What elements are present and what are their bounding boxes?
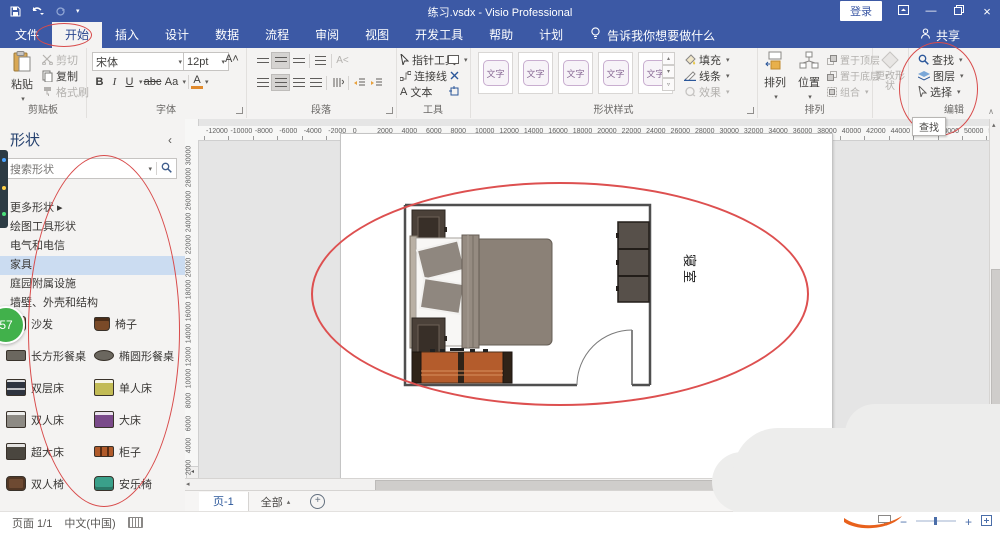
bring-front-icon — [827, 55, 837, 65]
shape-style-swatch-0[interactable]: 文字 — [478, 52, 513, 94]
paragraph-row-2 — [254, 74, 385, 91]
fill-button[interactable]: 填充▾ — [684, 52, 730, 67]
ribbon-tabs: 文件开始插入设计数据流程审阅视图开发工具帮助计划 — [2, 22, 576, 48]
rectangle-icon — [448, 55, 459, 64]
orange-swoosh-logo — [840, 512, 910, 532]
paragraph-row-1: A˂ — [254, 52, 351, 69]
effects-button[interactable]: 效果▾ — [684, 84, 730, 99]
shape-style-swatch-3[interactable]: 文字 — [598, 52, 633, 94]
xl-bed-icon — [6, 443, 26, 460]
bunk-bed-icon — [6, 379, 26, 396]
search-icon[interactable] — [161, 162, 172, 176]
fit-page-icon[interactable] — [981, 515, 992, 529]
page-tab[interactable]: 页-1 — [199, 492, 249, 512]
fill-bucket-icon — [684, 54, 696, 65]
increase-indent-button[interactable] — [368, 75, 385, 90]
gallery-down-button[interactable]: ▾ — [662, 65, 675, 78]
shape-styles-dialog-launcher[interactable] — [747, 107, 754, 114]
find-tooltip: 查找 — [912, 117, 946, 136]
font-group-label: 字体 — [86, 101, 246, 116]
bedroom-floor-plan[interactable]: 寝室 — [340, 133, 831, 477]
ribbon-tab-row: 文件开始插入设计数据流程审阅视图开发工具帮助计划 告诉我你想要做什么 共享 — [0, 22, 1000, 48]
chair-icon — [94, 317, 110, 331]
underline-button[interactable]: U — [122, 76, 137, 88]
align-right-button[interactable] — [290, 75, 307, 90]
tab-0[interactable]: 文件 — [2, 22, 52, 48]
page-indicator[interactable]: 页面 1/1 — [12, 515, 52, 531]
ribbon-group-change-shape: 更改形状 — [872, 48, 909, 118]
font-dialog-launcher[interactable] — [236, 107, 243, 114]
tab-3[interactable]: 设计 — [152, 22, 202, 48]
macro-record-icon[interactable] — [128, 517, 143, 528]
close-button[interactable]: × — [980, 4, 994, 19]
shape-styles-group-label: 形状样式 — [470, 101, 757, 116]
ribbon-display-options-icon[interactable] — [896, 5, 910, 18]
change-shape-button[interactable]: 更改形状 — [872, 51, 908, 92]
align-icon — [765, 51, 785, 71]
ribbon-group-shape-styles: 文字文字文字文字文字 ▴▾▿ 填充▾ 线条▾ 效果▾ 形状样式 — [470, 48, 758, 118]
brush-icon — [42, 86, 53, 97]
ruler-corner — [185, 119, 199, 141]
rect-table-icon — [6, 350, 26, 361]
scissors-icon — [42, 54, 53, 65]
align-left-button[interactable] — [254, 75, 271, 90]
connection-point-button[interactable] — [450, 68, 459, 83]
x-icon — [450, 71, 459, 80]
connector-icon — [400, 71, 411, 81]
shapes-panel-title: 形状 — [10, 129, 40, 150]
ribbon: 粘贴▾ 剪切 复制 格式刷 剪贴板 宋体▾ 12pt▾ A˄ . B I U ▾… — [0, 48, 1000, 120]
select-button[interactable]: 选择▾ — [918, 84, 961, 99]
justify-button[interactable] — [307, 75, 324, 90]
line-button[interactable]: 线条▾ — [684, 68, 730, 83]
collapse-ribbon-icon[interactable]: ∧ — [988, 107, 994, 116]
change-shape-icon — [880, 51, 900, 69]
stencil-shape-5[interactable]: 单人床 — [94, 379, 182, 396]
tab-5[interactable]: 流程 — [252, 22, 302, 48]
vertical-scroll-thumb[interactable] — [991, 269, 1000, 416]
search-dropdown-icon[interactable]: ▾ — [148, 165, 152, 173]
align-bottom-button[interactable] — [290, 53, 307, 68]
connector-tool-button[interactable]: 连接线 — [400, 68, 447, 83]
tab-8[interactable]: 开发工具 — [402, 22, 476, 48]
loveseat-icon — [6, 476, 26, 491]
tab-1[interactable]: 开始 — [52, 22, 102, 48]
drawing-tool-button[interactable] — [449, 84, 460, 99]
paragraph-dialog-launcher[interactable] — [386, 107, 393, 114]
vertical-ruler: ◂ 30000280002600024000220002000018000160… — [185, 140, 199, 479]
docked-app-strip[interactable] — [0, 150, 8, 228]
titlebar-controls: 登录 — × — [840, 0, 994, 22]
gallery-scroll-buttons: ▴▾▿ — [662, 52, 675, 91]
stencil-shape-1[interactable]: 椅子 — [94, 315, 182, 332]
strikethrough-button[interactable]: abc — [143, 76, 163, 88]
tab-6[interactable]: 审阅 — [302, 22, 352, 48]
shape-style-gallery: 文字文字文字文字文字 — [478, 52, 673, 94]
stencil-shape-6[interactable]: 双人床 — [6, 411, 94, 428]
tab-2[interactable]: 插入 — [102, 22, 152, 48]
group-icon — [827, 87, 837, 97]
share-label: 共享 — [936, 27, 960, 44]
stencil-shape-2[interactable]: 长方形餐桌 — [6, 347, 94, 364]
select-cursor-icon — [918, 86, 927, 97]
clipboard-icon — [12, 51, 32, 73]
font-family-combo[interactable]: 宋体▾ — [92, 52, 186, 71]
ribbon-group-font: 宋体▾ 12pt▾ A˄ . B I U ▾ abc Aa ▾ A ▾ 字体 — [86, 48, 247, 118]
position-icon — [799, 51, 819, 71]
copy-button[interactable]: 复制 — [42, 68, 78, 83]
shape-style-swatch-2[interactable]: 文字 — [558, 52, 593, 94]
room-label[interactable]: 寝室 — [682, 254, 697, 286]
stencil-shape-11[interactable]: 安乐椅 — [94, 475, 182, 492]
shape-style-swatch-1[interactable]: 文字 — [518, 52, 553, 94]
add-page-button[interactable]: + — [310, 494, 325, 509]
double-bed-icon — [6, 411, 26, 428]
group-button[interactable]: 组合▾ — [827, 84, 869, 99]
gallery-more-button[interactable]: ▿ — [662, 78, 675, 91]
align-middle-button[interactable] — [271, 52, 290, 69]
paragraph-group-label: 段落 — [246, 101, 396, 116]
scroll-left-icon[interactable]: ◂ — [186, 480, 190, 488]
change-case-button[interactable]: Aa — [163, 76, 181, 88]
align-top-button[interactable] — [254, 53, 271, 68]
stencil-shape-4[interactable]: 双层床 — [6, 379, 94, 396]
sign-in-button[interactable]: 登录 — [840, 1, 882, 21]
italic-button[interactable]: I — [107, 76, 122, 88]
freeform-icon — [449, 86, 460, 97]
clipboard-group-label: 剪贴板 — [0, 101, 86, 116]
grow-font-button[interactable]: A˄ — [225, 53, 239, 65]
editing-group-label: 编辑 — [908, 101, 1000, 116]
stencil-shape-10[interactable]: 双人椅 — [6, 475, 94, 492]
cut-button[interactable]: 剪切 — [42, 52, 78, 67]
text-direction-button[interactable]: A˂ — [334, 53, 351, 68]
effects-icon — [684, 86, 696, 97]
font-format-row: B I U ▾ abc Aa ▾ A ▾ — [92, 75, 209, 89]
dresser[interactable] — [412, 348, 512, 383]
stencil-shape-7[interactable]: 大床 — [94, 411, 182, 428]
tell-me-box[interactable]: 告诉我你想要做什么 — [590, 22, 715, 48]
zoom-slider[interactable] — [916, 516, 956, 529]
lightbulb-icon — [590, 27, 601, 43]
rectangle-tool-button[interactable]: ▾ — [448, 52, 468, 67]
font-size-combo[interactable]: 12pt▾ — [183, 52, 229, 71]
stencil-shape-8[interactable]: 超大床 — [6, 443, 94, 460]
shapes-panel: 形状 ‹ 搜索形状 ▾ 更多形状 ▸绘图工具形状电气和电信家具庭园附属设施墙壁、… — [0, 119, 186, 532]
tell-me-label: 告诉我你想要做什么 — [607, 27, 715, 44]
find-button[interactable]: 查找▾ — [918, 52, 963, 67]
ribbon-group-editing: 查找▾ 图层▾ 选择▾ 编辑 ∧ — [908, 48, 1000, 118]
zoom-in-icon[interactable]: + — [965, 515, 972, 529]
search-icon — [918, 54, 929, 65]
vertical-text-button[interactable] — [329, 75, 346, 90]
copy-icon — [42, 70, 53, 82]
cabinet-icon — [94, 446, 114, 457]
panel-collapse-icon[interactable]: ‹ — [168, 133, 172, 147]
text-tool-button[interactable]: A 文本 — [400, 84, 432, 99]
tab-7[interactable]: 视图 — [352, 22, 402, 48]
bullet-list-button[interactable] — [312, 53, 329, 68]
paste-button[interactable]: 粘贴▾ — [4, 51, 40, 104]
all-pages-dropdown[interactable]: 全部▴ — [249, 494, 303, 510]
format-painter-button[interactable]: 格式刷 — [42, 84, 89, 99]
oval-table-icon — [94, 350, 114, 361]
stencil-category-2[interactable]: 电气和电信 — [0, 237, 185, 256]
stencil-category-5[interactable]: 墙壁、外壳和结构 — [0, 294, 185, 313]
single-bed-icon — [94, 379, 114, 396]
arrange-group-label: 排列 — [757, 101, 872, 116]
align-button[interactable]: 排列▾ — [759, 51, 791, 102]
large-bed-icon — [94, 411, 114, 428]
bold-button[interactable]: B — [92, 76, 107, 88]
overlay-blob — [845, 404, 1000, 512]
title-bar: ▾ 练习.vsdx - Visio Professional 登录 — × — [0, 0, 1000, 22]
stencil-category-1[interactable]: 绘图工具形状 — [0, 218, 185, 237]
text-a-icon: A — [400, 86, 407, 98]
scroll-up-icon[interactable]: ▴ — [992, 121, 996, 129]
send-back-icon — [827, 71, 837, 81]
wardrobe[interactable] — [616, 222, 649, 302]
ribbon-group-tools: 指针工具 连接线 A 文本 ▾ 工具 — [396, 48, 471, 118]
person-icon — [920, 28, 931, 42]
easy-chair-icon — [94, 476, 114, 491]
stencil-category-list: 更多形状 ▸绘图工具形状电气和电信家具庭园附属设施墙壁、外壳和结构 — [0, 199, 185, 313]
shape-search-box[interactable]: 搜索形状 ▾ — [5, 158, 177, 179]
minimize-button[interactable]: — — [924, 5, 938, 17]
stencil-shape-grid: 沙发椅子长方形餐桌椭圆形餐桌双层床单人床双人床大床超大床柜子双人椅安乐椅 — [6, 315, 184, 492]
door[interactable] — [577, 330, 632, 385]
maximize-button[interactable] — [952, 5, 966, 18]
tools-group-label: 工具 — [396, 101, 470, 116]
decrease-indent-button[interactable] — [351, 75, 368, 90]
tab-10[interactable]: 计划 — [526, 22, 576, 48]
language-indicator[interactable]: 中文(中国) — [64, 515, 115, 531]
align-center-button[interactable] — [271, 74, 290, 91]
line-pen-icon — [684, 70, 696, 81]
share-button[interactable]: 共享 — [920, 22, 960, 48]
stencil-shape-3[interactable]: 椭圆形餐桌 — [94, 347, 182, 364]
layers-button[interactable]: 图层▾ — [918, 68, 964, 83]
pointer-icon — [400, 54, 409, 65]
ribbon-group-clipboard: 粘贴▾ 剪切 复制 格式刷 剪贴板 — [0, 48, 87, 118]
gallery-up-button[interactable]: ▴ — [662, 52, 675, 65]
font-color-button[interactable]: A — [191, 75, 203, 89]
stencil-shape-9[interactable]: 柜子 — [94, 443, 182, 460]
tab-4[interactable]: 数据 — [202, 22, 252, 48]
ribbon-group-paragraph: A˂ 段落 — [246, 48, 397, 118]
tab-9[interactable]: 帮助 — [476, 22, 526, 48]
layers-icon — [918, 71, 930, 81]
position-button[interactable]: 位置▾ — [793, 51, 825, 102]
ribbon-group-arrange: 排列▾ 位置▾ 置于顶层▾ 置于底层▾ 组合▾ 排列 — [757, 48, 873, 118]
shape-search-placeholder: 搜索形状 — [10, 161, 146, 177]
stencil-category-4[interactable]: 庭园附属设施 — [0, 275, 185, 294]
stencil-category-3[interactable]: 家具 — [0, 256, 185, 275]
stencil-category-0[interactable]: 更多形状 ▸ — [0, 199, 185, 218]
